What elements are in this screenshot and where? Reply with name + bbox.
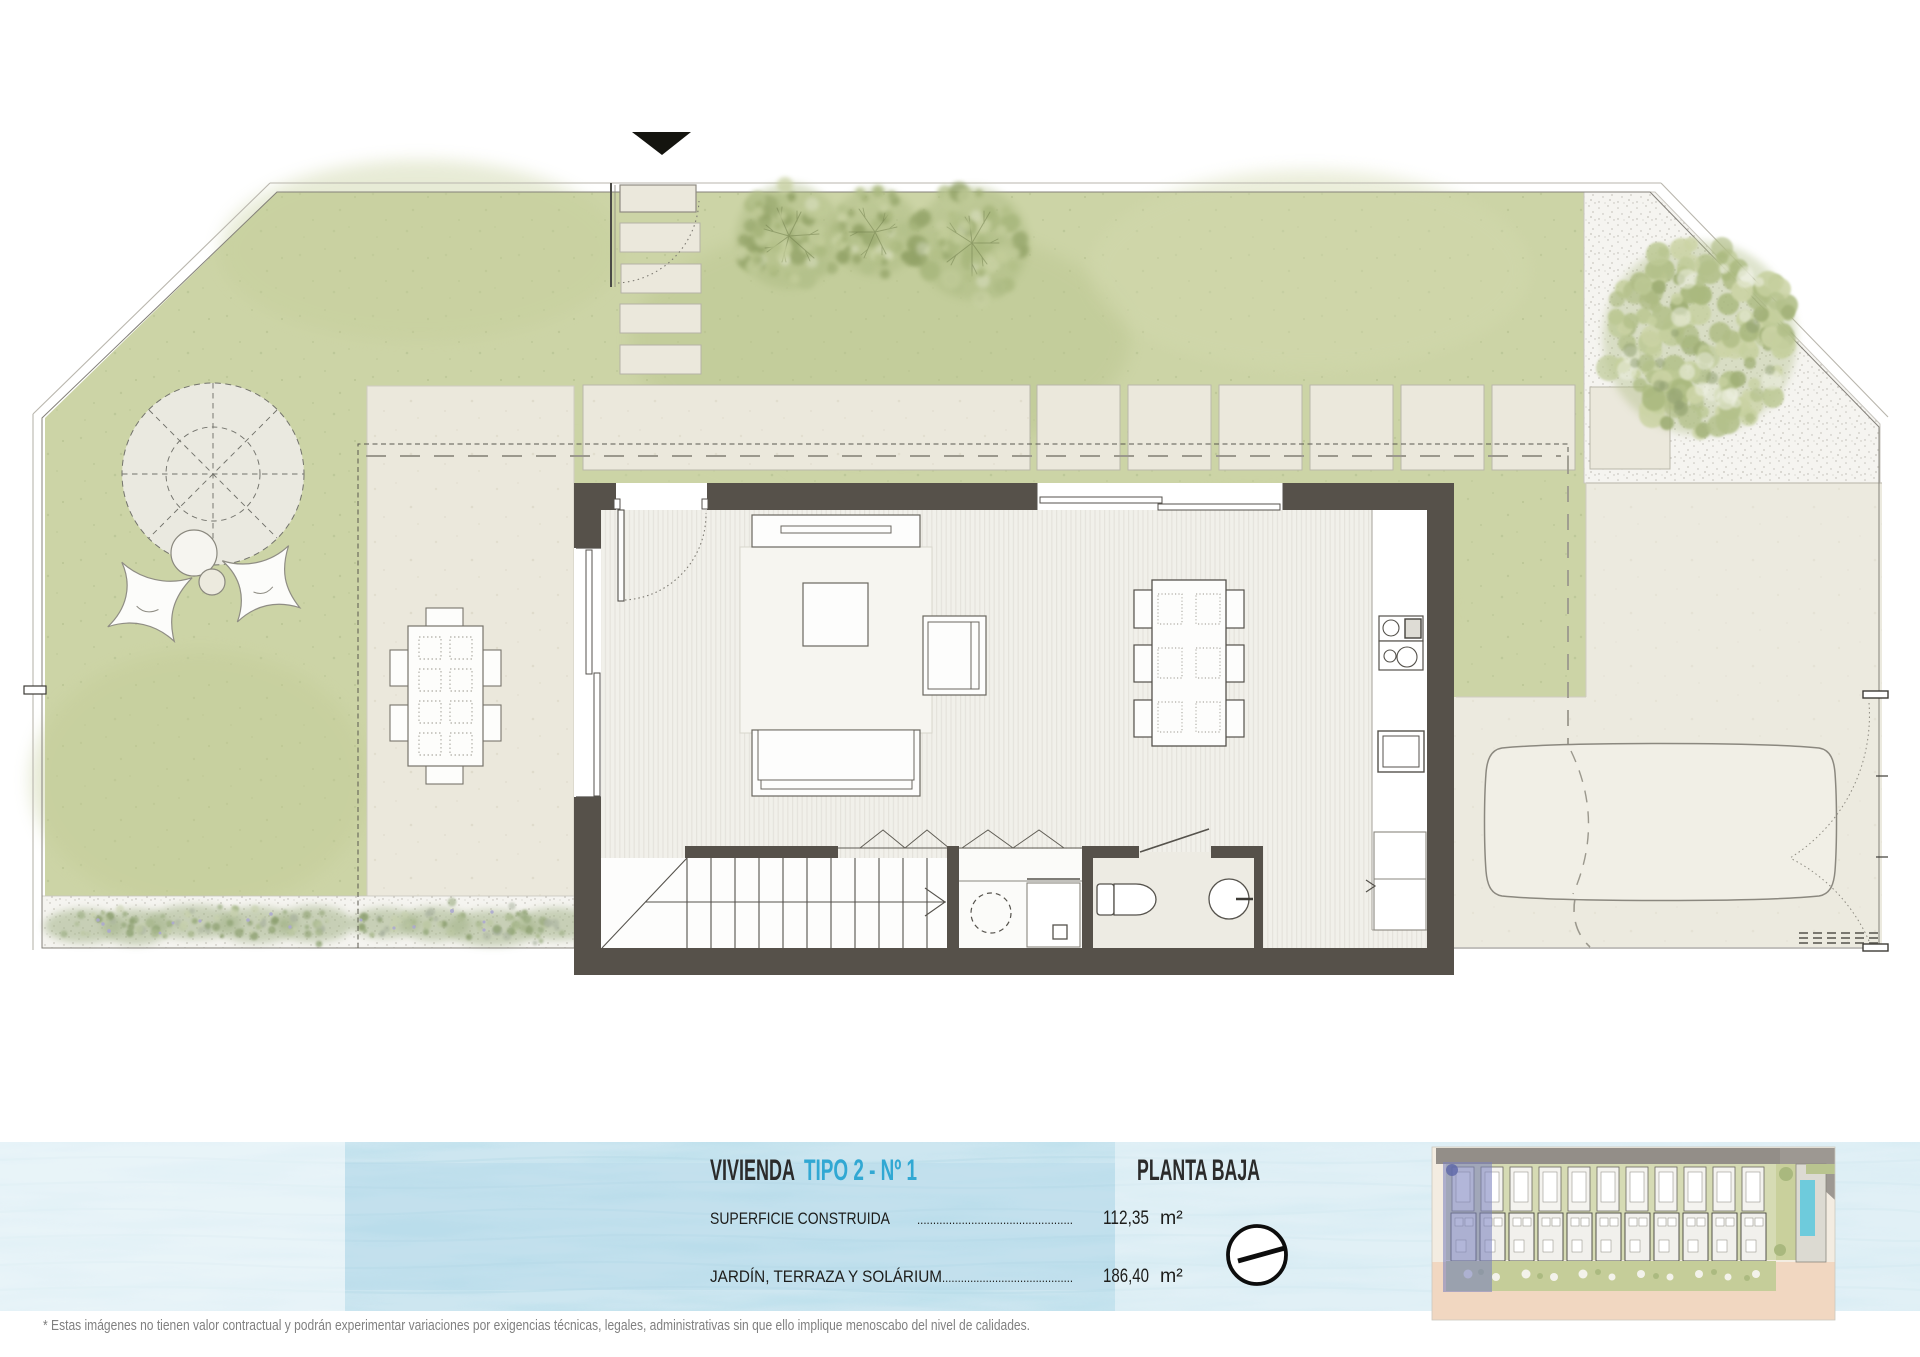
svg-text:m²: m² <box>1160 1207 1183 1229</box>
svg-text:TIPO 2 - Nº 1: TIPO 2 - Nº 1 <box>804 1154 917 1187</box>
svg-text:PLANTA BAJA: PLANTA BAJA <box>1137 1154 1260 1187</box>
svg-text:..............................: ........................................… <box>917 1212 1073 1227</box>
svg-text:SUPERFICIE CONSTRUIDA: SUPERFICIE CONSTRUIDA <box>710 1209 891 1228</box>
svg-text:112,35: 112,35 <box>1103 1207 1149 1229</box>
svg-text:VIVIENDA: VIVIENDA <box>710 1154 795 1187</box>
svg-text:JARDÍN, TERRAZA Y SOLÁRIUM: JARDÍN, TERRAZA Y SOLÁRIUM <box>710 1267 942 1286</box>
svg-text:186,40: 186,40 <box>1103 1265 1149 1287</box>
svg-text:* Estas imágenes no tienen val: * Estas imágenes no tienen valor contrac… <box>43 1317 1030 1334</box>
svg-text:..............................: ........................................… <box>942 1270 1073 1285</box>
svg-text:m²: m² <box>1160 1265 1183 1287</box>
